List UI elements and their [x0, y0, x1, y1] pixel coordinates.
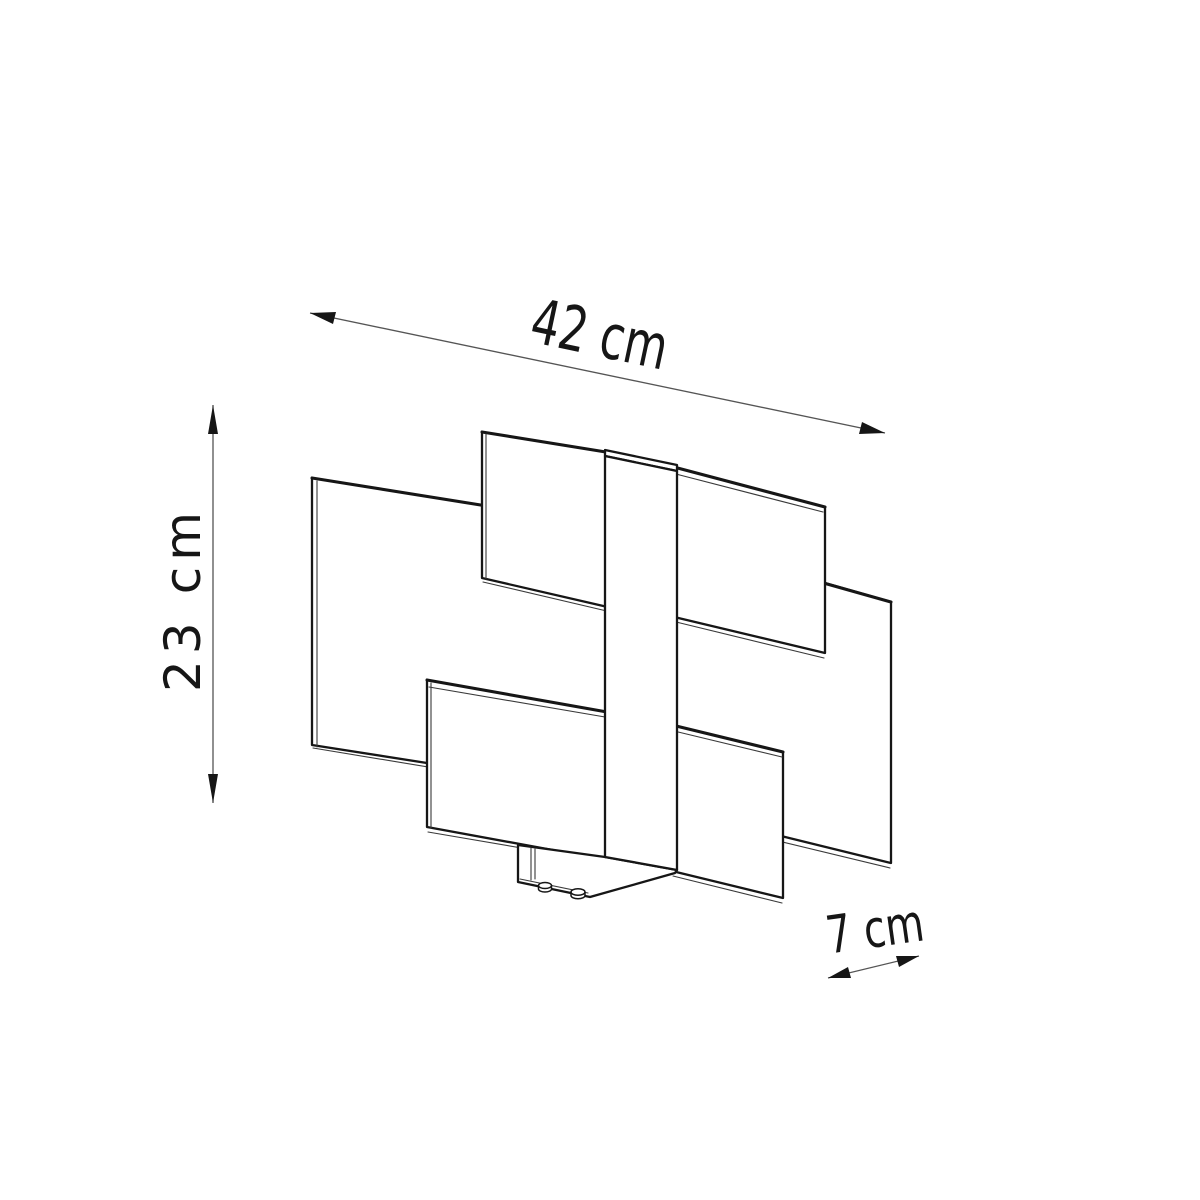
screw-head	[571, 889, 585, 895]
center-bracket-front-face	[605, 456, 677, 870]
arrowhead-up-icon	[208, 405, 218, 434]
width-dimension-label: 42 cm	[525, 284, 675, 384]
screw-head	[539, 883, 552, 889]
technical-drawing-page: 42 cm 23 cm 7 cm	[0, 0, 1200, 1200]
arrowhead-depth-left-icon	[828, 967, 851, 978]
arrowhead-depth-right-icon	[896, 956, 919, 967]
dimension-height: 23 cm	[154, 405, 218, 803]
arrowhead-down-icon	[208, 774, 218, 803]
bottom-right-glass-panel	[672, 725, 783, 903]
technical-drawing-canvas: 42 cm 23 cm 7 cm	[0, 0, 1200, 1200]
mounting-screw-1	[539, 883, 552, 893]
mounting-screw-2	[571, 889, 585, 899]
dimension-width: 42 cm	[310, 284, 885, 434]
bottom-left-glass-panel	[427, 680, 607, 862]
bottom-right-glass-panel-face	[672, 725, 783, 898]
top-center-glass-panel-face	[482, 432, 612, 608]
height-dimension-label: 23 cm	[154, 512, 212, 692]
arrowhead-left-icon	[310, 312, 336, 324]
dimension-depth: 7 cm	[822, 893, 927, 978]
depth-dimension-label: 7 cm	[822, 893, 927, 966]
center-bracket	[605, 450, 677, 870]
arrowhead-right-icon	[859, 422, 885, 434]
